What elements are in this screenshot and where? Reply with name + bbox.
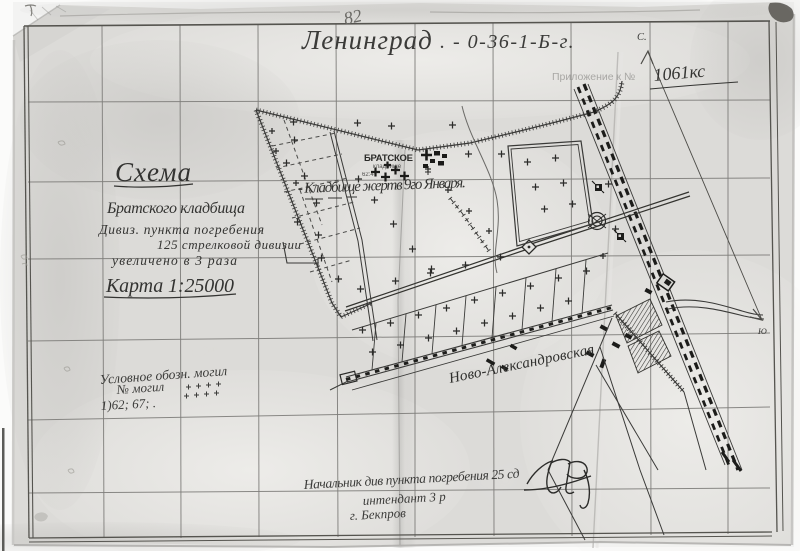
svg-text:увеличено в 3 раза: увеличено в 3 раза xyxy=(110,253,237,268)
svg-text:Ленинград: Ленинград xyxy=(301,25,433,55)
svg-text:Карта 1:25000: Карта 1:25000 xyxy=(105,275,234,297)
svg-text:Схема: Схема xyxy=(115,157,192,187)
svg-text:. - 0-36-1-Б-г.: . - 0-36-1-Б-г. xyxy=(440,31,575,53)
svg-text:БРАТСКОЕ: БРАТСКОЕ xyxy=(364,153,413,164)
svg-text:125 стрелковой дивизии: 125 стрелковой дивизии xyxy=(157,237,302,252)
svg-text:62:47: 62:47 xyxy=(362,172,378,178)
svg-text:Братского кладбища: Братского кладбища xyxy=(106,200,245,217)
svg-text:Ю: Ю xyxy=(757,326,767,336)
svg-text:С.: С. xyxy=(637,32,647,43)
svg-text:г. Бекпров: г. Бекпров xyxy=(349,505,406,523)
svg-text:кладбище: кладбище xyxy=(373,164,402,170)
svg-text:Приложение к №: Приложение к № xyxy=(552,71,635,83)
svg-text:Дивиз. пункта погребения: Дивиз. пункта погребения xyxy=(97,222,264,237)
svg-text:1)62; 67; .: 1)62; 67; . xyxy=(100,395,156,413)
